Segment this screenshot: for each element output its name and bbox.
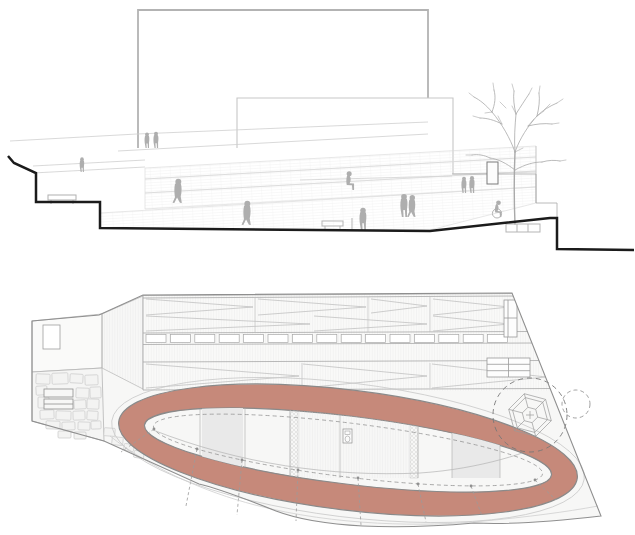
stone bbox=[74, 400, 86, 410]
stone bbox=[76, 388, 89, 398]
rooflight-rect bbox=[43, 325, 60, 349]
architectural-drawing bbox=[0, 0, 635, 535]
skylight bbox=[268, 335, 288, 343]
stone bbox=[56, 411, 71, 421]
architectural-drawing-canvas bbox=[0, 0, 635, 535]
person-figure bbox=[145, 133, 150, 148]
stone bbox=[73, 411, 85, 420]
skylight bbox=[244, 335, 264, 343]
stone bbox=[52, 373, 68, 385]
skylight bbox=[219, 335, 239, 343]
skylight bbox=[463, 335, 483, 343]
stone bbox=[78, 422, 90, 430]
skylight bbox=[366, 335, 386, 343]
terrace-line bbox=[118, 134, 428, 151]
skylight bbox=[341, 335, 361, 343]
plan-view bbox=[32, 293, 601, 535]
tree-trunk bbox=[514, 152, 515, 224]
skylight bbox=[390, 335, 410, 343]
terrace-steps bbox=[100, 146, 557, 230]
skylight bbox=[439, 335, 459, 343]
skylight bbox=[195, 335, 215, 343]
stone bbox=[87, 411, 98, 421]
skylight bbox=[292, 335, 312, 343]
plan-benches bbox=[44, 389, 73, 409]
stone bbox=[36, 374, 50, 384]
stone bbox=[90, 387, 101, 398]
skylight-row bbox=[146, 335, 508, 343]
room-outline bbox=[32, 314, 102, 372]
terrace-line bbox=[33, 160, 145, 166]
roof-stair-rect bbox=[504, 300, 517, 337]
plan-bench bbox=[44, 389, 73, 397]
left-room bbox=[32, 314, 102, 372]
tree-planter bbox=[506, 224, 540, 232]
stone bbox=[40, 410, 54, 419]
kiosk-outline bbox=[487, 162, 498, 184]
terrace-line bbox=[137, 122, 428, 134]
background-building-outline bbox=[138, 10, 428, 148]
slat-panel bbox=[487, 358, 530, 377]
person-figure bbox=[80, 157, 85, 172]
stone bbox=[62, 422, 75, 430]
skylight bbox=[170, 335, 190, 343]
person-figure bbox=[153, 132, 158, 148]
section-view bbox=[8, 10, 634, 250]
terrace-line bbox=[10, 134, 137, 141]
stone bbox=[91, 421, 101, 429]
skylight bbox=[414, 335, 434, 343]
terrace-line bbox=[33, 167, 145, 173]
plan-tree-circle-small bbox=[562, 390, 590, 418]
skylight bbox=[146, 335, 166, 343]
skylight bbox=[317, 335, 337, 343]
infield-fixture bbox=[343, 429, 352, 443]
stone bbox=[85, 375, 98, 385]
stone bbox=[70, 374, 83, 384]
stone bbox=[87, 399, 99, 409]
stone bbox=[58, 431, 71, 438]
bench-seat bbox=[48, 195, 76, 200]
roof-hatching bbox=[143, 293, 556, 391]
